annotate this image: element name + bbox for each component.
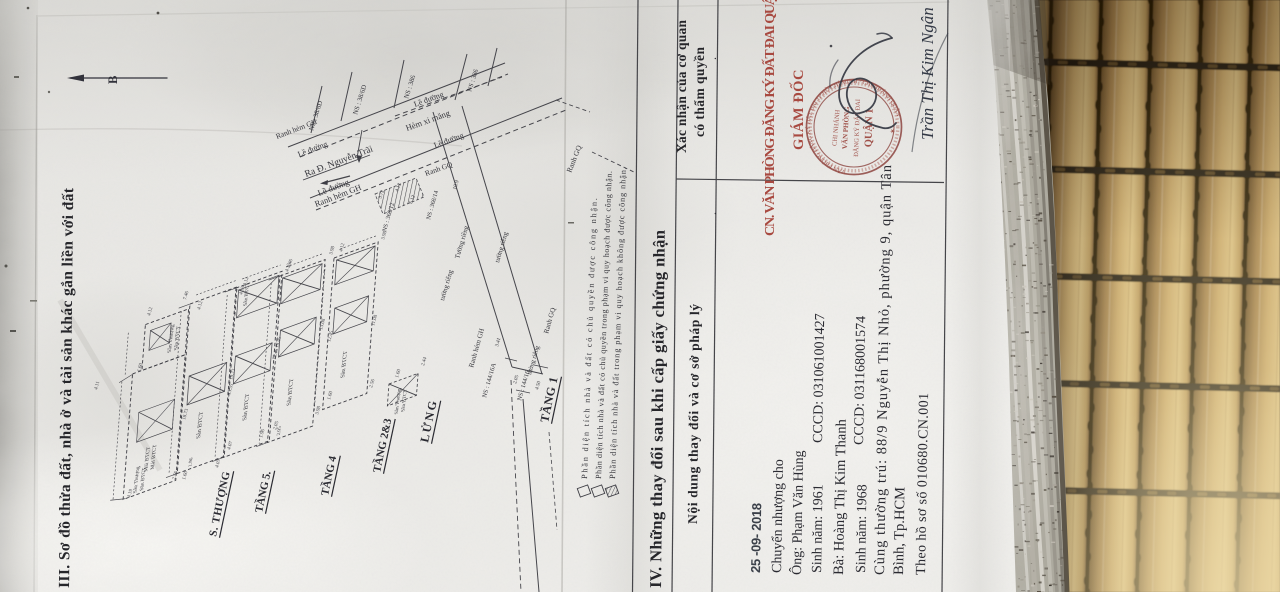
svg-text:25 -09- 2018: 25 -09- 2018 [748,503,764,573]
svg-text:Bình, Tp.HCM: Bình, Tp.HCM [891,487,909,575]
svg-text:Ông: Phạm Văn Hùng: Ông: Phạm Văn Hùng [788,450,807,575]
svg-text:Theo hồ sơ số 010680.CN.001: Theo hồ sơ số 010680.CN.001 [914,393,932,575]
svg-text:CCCD: 031168001574: CCCD: 031168001574 [852,316,869,445]
svg-text:IV. Những thay đổi sau khi cấp: IV. Những thay đổi sau khi cấp giấy chứn… [646,230,669,588]
svg-text:.: . [705,212,719,215]
svg-text:✶: ✶ [889,128,897,134]
svg-text:Sinh năm: 1968: Sinh năm: 1968 [854,484,871,573]
svg-text:Bà: Hoàng Thị Kim Thanh: Bà: Hoàng Thị Kim Thanh [831,418,850,575]
svg-text:B: B [106,76,120,84]
svg-text:Nội dung thay đổi và cơ sở phá: Nội dung thay đổi và cơ sở pháp lý [685,304,702,524]
svg-text:Chuyển nhượng cho: Chuyển nhượng cho [770,459,787,573]
svg-text:GIÁM ĐỐC: GIÁM ĐỐC [789,69,807,150]
svg-text:Xác nhận của cơ quan: Xác nhận của cơ quan [674,20,689,153]
svg-text:Sinh năm: 1961: Sinh năm: 1961 [810,484,827,573]
svg-text:Trần Thị Kim Ngân: Trần Thị Kim Ngân [918,7,937,140]
svg-text:CCCD: 031061001427: CCCD: 031061001427 [811,313,828,443]
svg-text:.: . [705,57,719,60]
svg-text:CN. VĂN PHÒNG ĐĂNG KÝ ĐẤT ĐAI: CN. VĂN PHÒNG ĐĂNG KÝ ĐẤT ĐAI QUẬN [761,0,778,236]
